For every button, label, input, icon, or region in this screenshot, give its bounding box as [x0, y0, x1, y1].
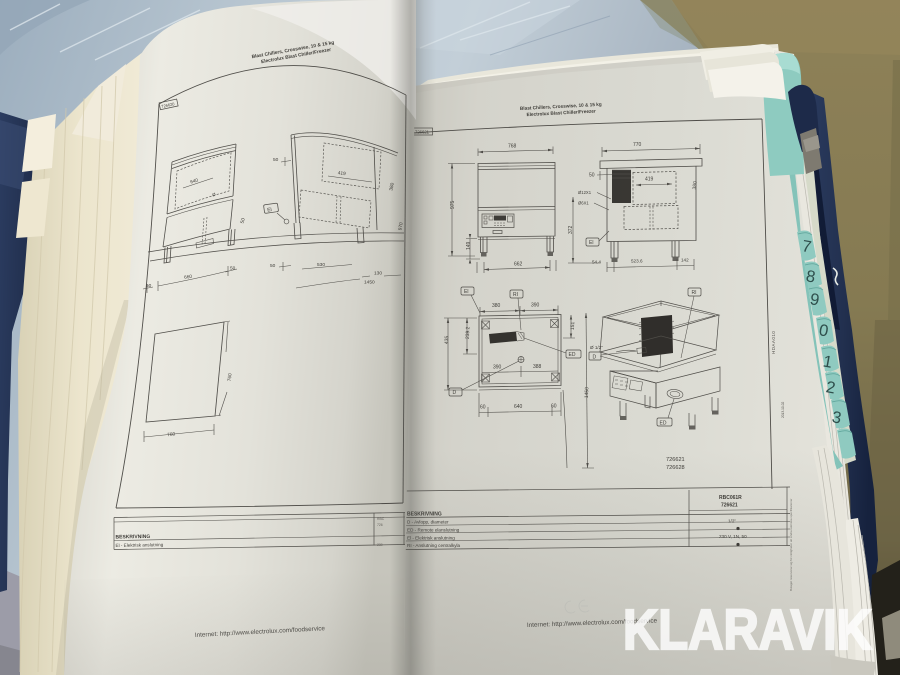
svg-text:390: 390 — [531, 303, 540, 309]
svg-text:RI: RI — [692, 290, 697, 296]
svg-text:D: D — [593, 354, 597, 360]
svg-text:50: 50 — [589, 173, 595, 179]
svg-text:760: 760 — [227, 373, 234, 382]
svg-text:419: 419 — [337, 170, 346, 177]
svg-text:142: 142 — [681, 258, 689, 263]
svg-text:640: 640 — [514, 404, 523, 410]
svg-text:D: D — [453, 390, 457, 396]
svg-text:Ø 1/2": Ø 1/2" — [590, 345, 603, 350]
svg-text:726: 726 — [377, 523, 383, 527]
svg-text:Ø6X1: Ø6X1 — [578, 201, 589, 206]
svg-text:380: 380 — [492, 303, 501, 309]
svg-text:380: 380 — [692, 181, 699, 190]
svg-text:El: El — [267, 207, 272, 214]
svg-text:239.2: 239.2 — [465, 326, 471, 339]
svg-text:149: 149 — [466, 241, 472, 250]
svg-text:60: 60 — [480, 405, 486, 411]
svg-text:435: 435 — [444, 335, 450, 344]
svg-text:Ø12X1: Ø12X1 — [578, 190, 592, 195]
svg-text:523.6: 523.6 — [631, 259, 643, 264]
svg-text:726628: 726628 — [666, 465, 685, 471]
svg-text:1450: 1450 — [584, 387, 591, 399]
svg-text:975: 975 — [450, 200, 456, 209]
svg-text:KLARAVIK: KLARAVIK — [623, 598, 872, 662]
svg-text:RI: RI — [513, 292, 518, 298]
svg-text:50: 50 — [270, 263, 276, 269]
svg-text:230 V, 1N, 50: 230 V, 1N, 50 — [719, 534, 747, 539]
svg-text:760: 760 — [167, 431, 176, 438]
svg-text:1/2": 1/2" — [728, 519, 736, 524]
svg-text:130: 130 — [374, 271, 382, 277]
svg-text:662: 662 — [514, 262, 523, 268]
svg-text:768: 768 — [508, 144, 517, 150]
svg-text:419: 419 — [645, 177, 654, 183]
svg-text:230: 230 — [377, 543, 383, 547]
svg-text:BESKRIVNING: BESKRIVNING — [115, 534, 150, 541]
svg-text:1450: 1450 — [364, 280, 375, 286]
svg-text:726621: 726621 — [721, 503, 738, 509]
svg-text:2013-10-02: 2013-10-02 — [781, 401, 785, 418]
svg-text:Bolaget reserverar sig för rät: Bolaget reserverar sig för rättigheter a… — [789, 498, 793, 591]
svg-text:El - Elektrisk anslutning: El - Elektrisk anslutning — [115, 542, 163, 548]
svg-text:50: 50 — [273, 157, 279, 163]
svg-text:El: El — [464, 289, 468, 295]
svg-text:726621: 726621 — [666, 457, 685, 463]
svg-text:El: El — [589, 240, 593, 246]
svg-text:54.4: 54.4 — [592, 260, 601, 265]
svg-text:RBC061R: RBC061R — [719, 495, 742, 501]
svg-text:390: 390 — [493, 365, 502, 371]
svg-text:HDAA010: HDAA010 — [771, 331, 776, 354]
svg-text:ED: ED — [569, 352, 576, 358]
svg-text:ED: ED — [660, 420, 667, 426]
svg-text:770: 770 — [633, 142, 642, 148]
svg-text:388: 388 — [533, 364, 542, 370]
svg-text:RBC: RBC — [377, 517, 385, 521]
